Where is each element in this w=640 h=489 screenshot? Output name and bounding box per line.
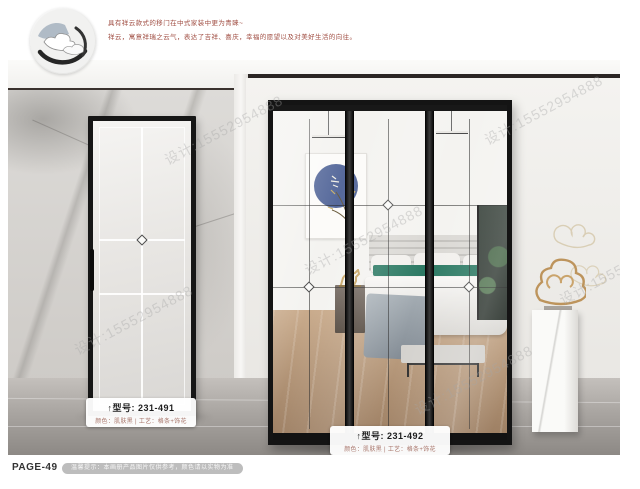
page-footer: PAGE-49 温馨提示：本画册产品图片仅供参考，颜色请以实物为准 <box>0 455 640 489</box>
page-number: PAGE-49 <box>12 462 58 473</box>
catalog-page: 具有祥云款式的移门在中式家装中更为青睐~ 祥云，寓意祥瑞之云气，表达了吉祥、喜庆… <box>0 0 640 489</box>
gold-cloud-sculpture <box>528 252 586 314</box>
glass-reflection <box>273 105 507 440</box>
intro-line-1: 具有祥云款式的移门在中式家装中更为青睐~ <box>108 17 356 31</box>
intro-line-2: 祥云，寓意祥瑞之云气，表达了吉祥、喜庆，幸福的愿望以及对美好生活的向往。 <box>108 31 356 45</box>
ink-cloud-logo <box>30 8 96 74</box>
model-number: ↑型号: 231-491 <box>90 401 192 414</box>
model-spec: 颜色：肌肤黑 | 工艺：格条+饰花 <box>334 444 446 453</box>
glass-grid-line <box>99 293 185 295</box>
product-label-231-492: ↑型号: 231-492 颜色：肌肤黑 | 工艺：格条+饰花 <box>330 426 450 455</box>
door-mullion <box>425 105 434 440</box>
model-number: ↑型号: 231-492 <box>334 429 446 442</box>
notice-badge: 温馨提示：本画册产品图片仅供参考，颜色请以实物为准 <box>62 463 243 474</box>
door-mullion <box>345 105 354 440</box>
product-label-231-491: ↑型号: 231-491 颜色：肌肤黑 | 工艺：格条+饰花 <box>86 398 196 427</box>
ink-cloud-logo-art <box>30 8 96 74</box>
intro-text: 具有祥云款式的移门在中式家装中更为青睐~ 祥云，寓意祥瑞之云气，表达了吉祥、喜庆… <box>108 17 356 45</box>
glass-grid-line <box>141 127 143 405</box>
marble-pedestal <box>532 310 578 432</box>
showroom-photo: ↑型号: 231-491 颜色：肌肤黑 | 工艺：格条+饰花 ↑型号: 231-… <box>8 60 620 455</box>
sliding-track-top <box>273 105 507 111</box>
sliding-door-231-492 <box>268 100 512 445</box>
hinged-door-231-491 <box>88 116 196 416</box>
bedroom-view <box>273 105 507 440</box>
model-spec: 颜色：肌肤黑 | 工艺：格条+饰花 <box>90 416 192 425</box>
door-handle <box>90 249 94 291</box>
